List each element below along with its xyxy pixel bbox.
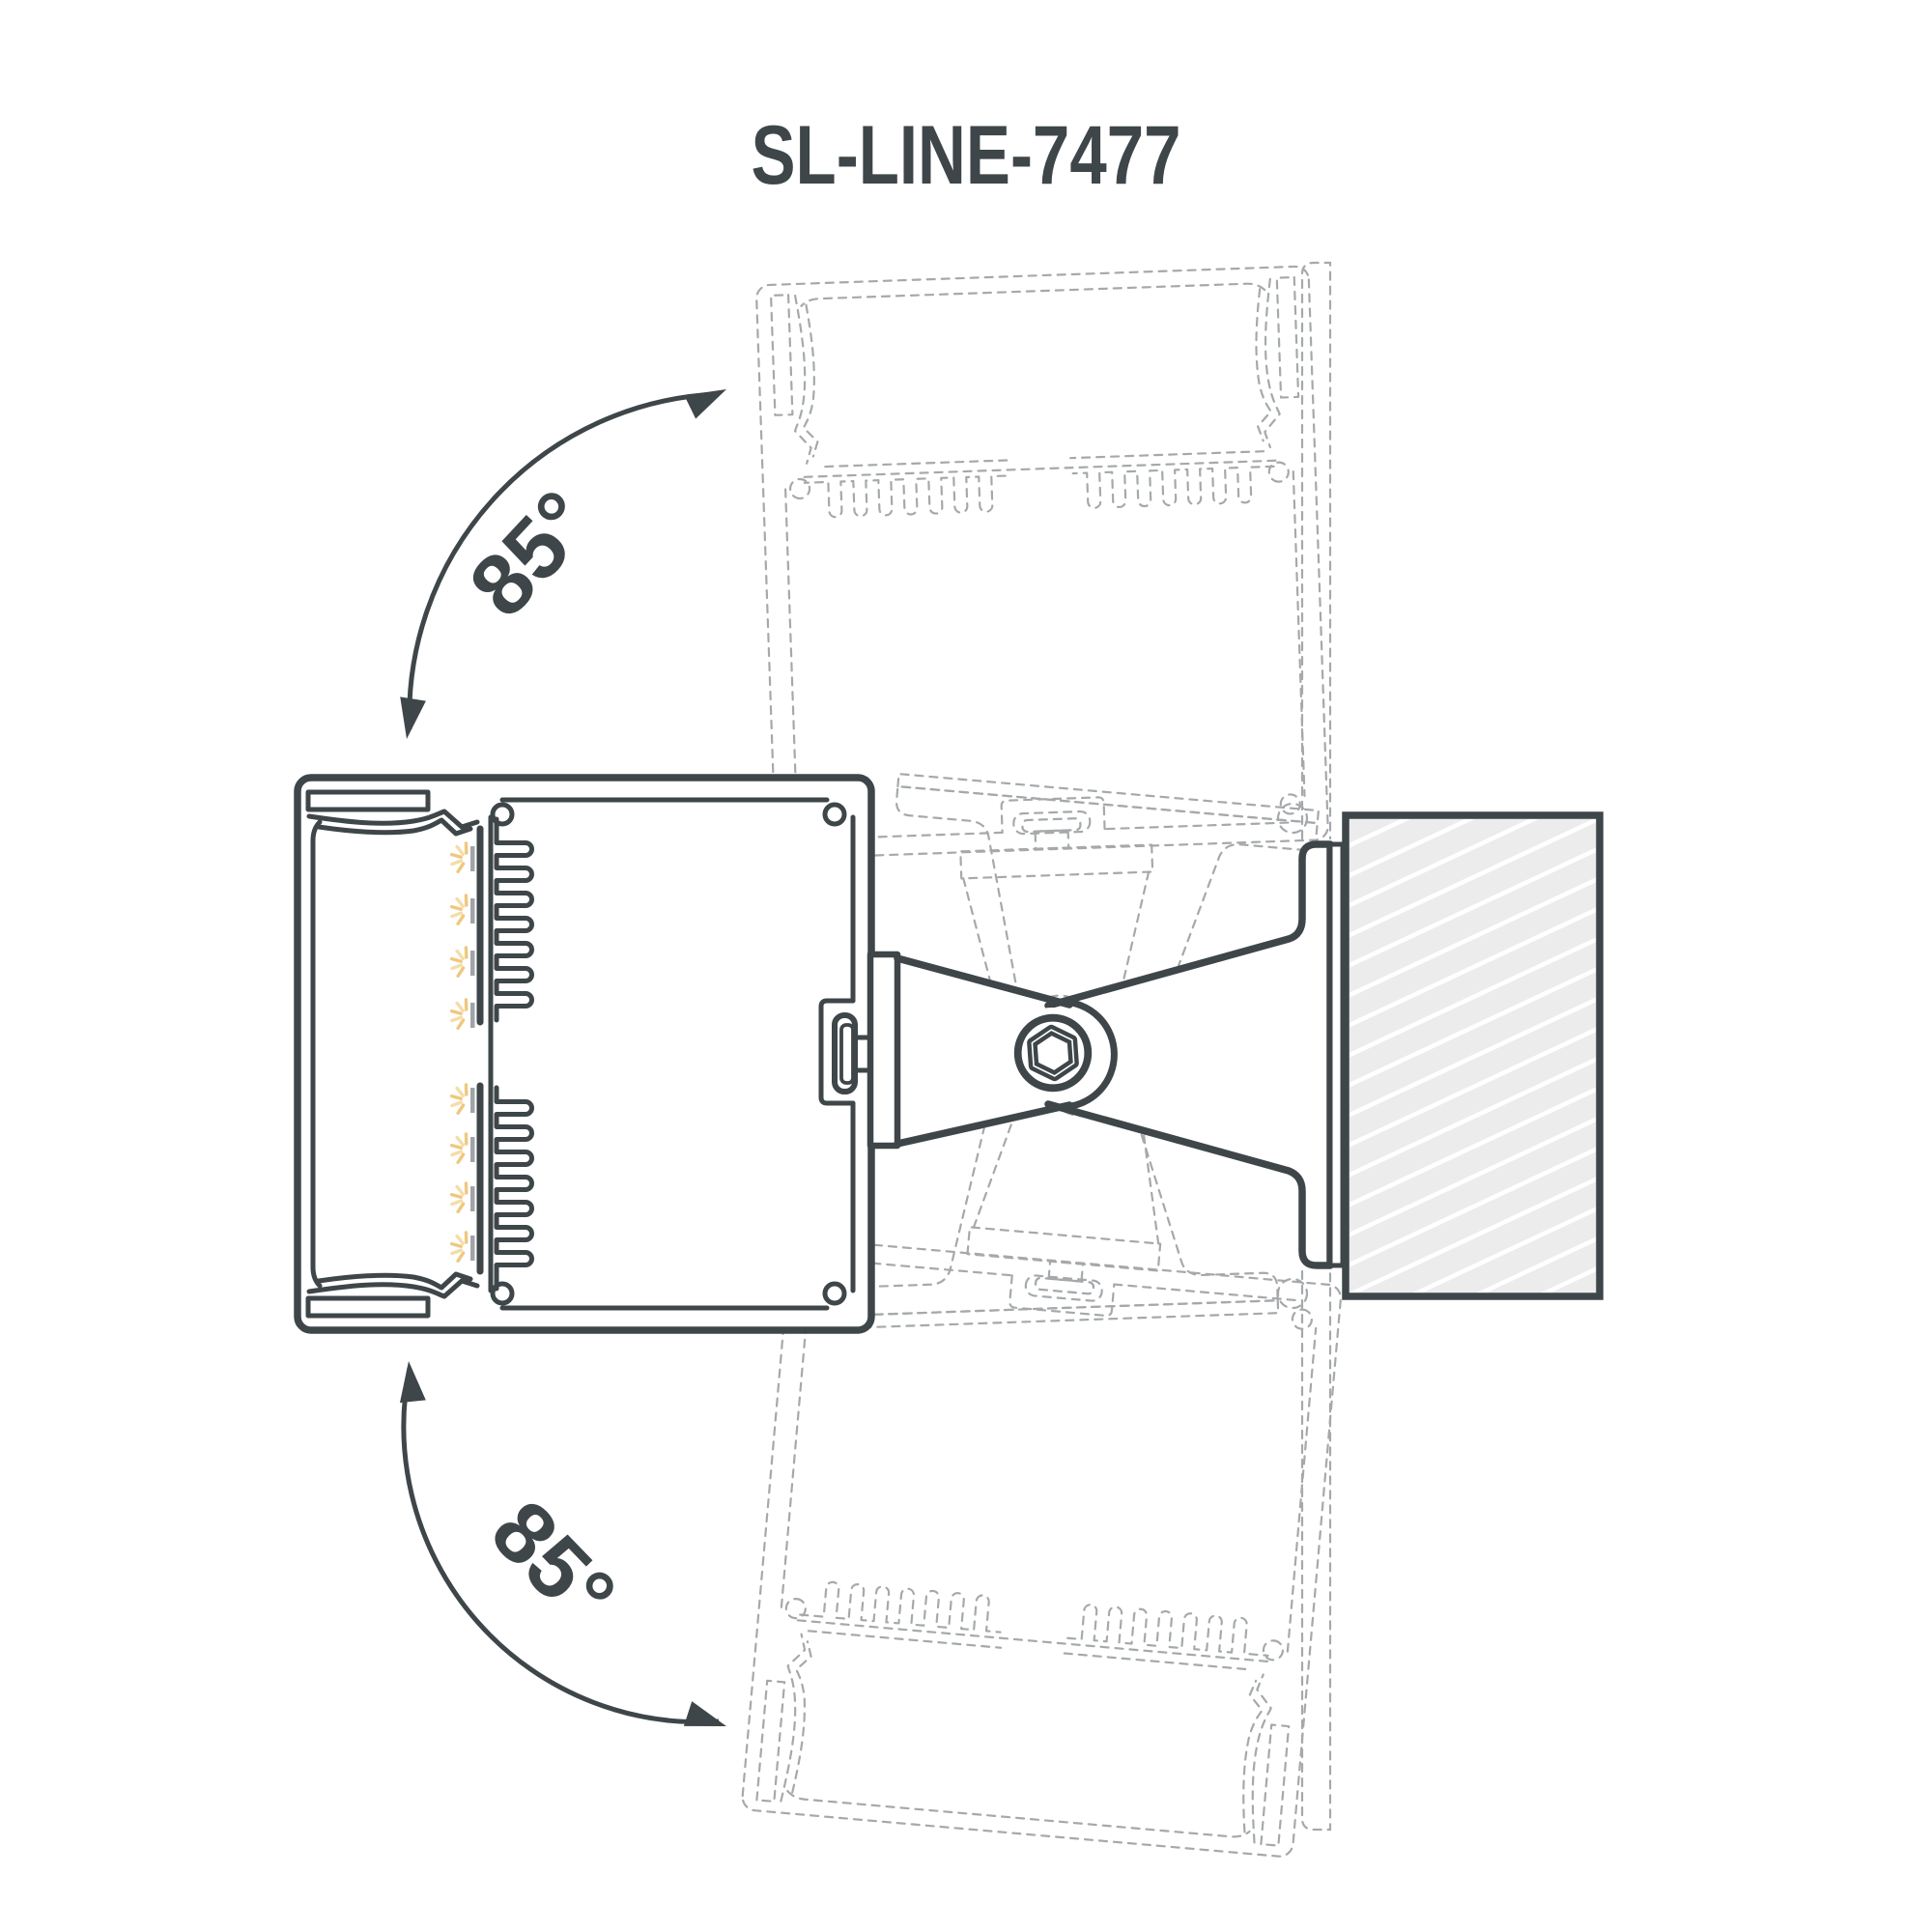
- svg-text:85°: 85°: [472, 1483, 633, 1644]
- svg-text:SL-LINE-7477: SL-LINE-7477: [752, 109, 1181, 202]
- svg-text:85°: 85°: [451, 473, 611, 636]
